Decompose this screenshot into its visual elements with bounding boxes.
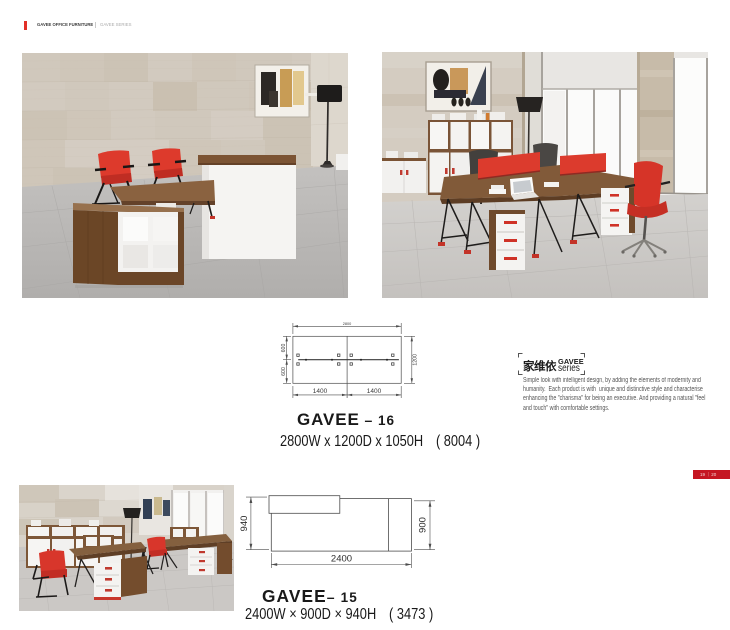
svg-text:1400: 1400: [367, 388, 382, 395]
svg-text:900: 900: [418, 517, 429, 533]
svg-text:1200: 1200: [412, 354, 418, 366]
svg-text:2800: 2800: [343, 322, 351, 326]
svg-text:600: 600: [281, 344, 287, 353]
svg-text:940: 940: [239, 516, 250, 532]
svg-text:1400: 1400: [313, 388, 328, 395]
svg-text:2400: 2400: [331, 554, 352, 565]
svg-text:600: 600: [281, 367, 287, 376]
